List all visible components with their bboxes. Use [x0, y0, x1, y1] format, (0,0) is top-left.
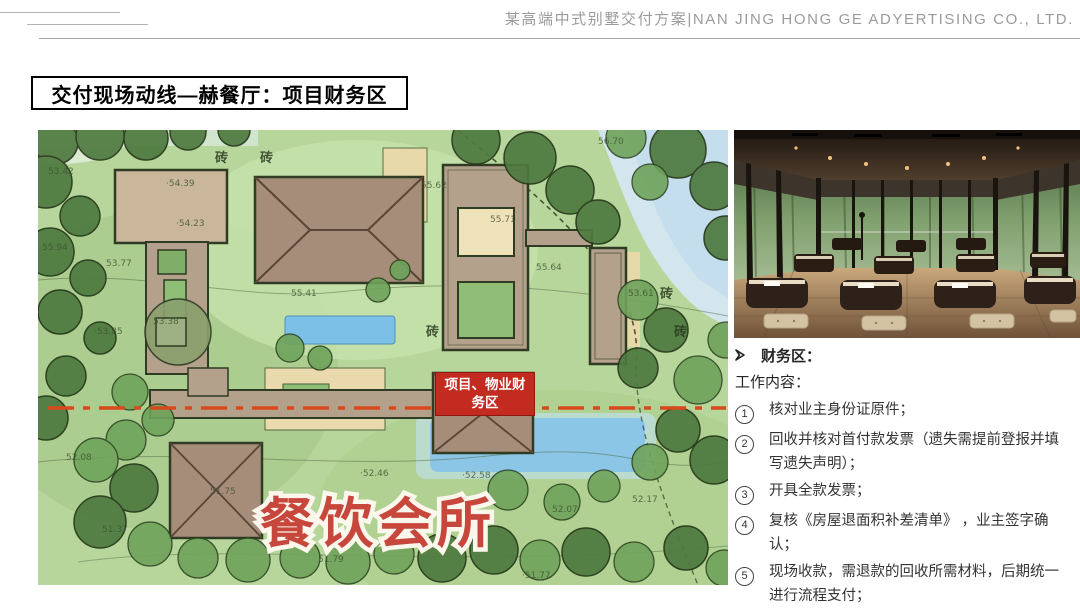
list-item: 4 复核《房屋退面积补差清单》 ，业主签字确认； [735, 509, 1069, 557]
svg-text:52.17: 52.17 [632, 495, 658, 505]
page-title: 交付现场动线—赫餐厅：项目财务区 [52, 79, 388, 108]
svg-text:53.38: 53.38 [153, 317, 179, 327]
svg-text:52.07: 52.07 [552, 505, 578, 515]
decor-line [0, 12, 120, 13]
list-item-text: 现场收款，需退款的回收所需材料，后期统一进行流程支付； [769, 560, 1069, 608]
svg-text:56.70: 56.70 [598, 137, 624, 147]
interior-photo [734, 130, 1080, 338]
svg-text:·54.23: ·54.23 [176, 219, 205, 229]
svg-text:55.62: 55.62 [421, 181, 447, 191]
arrow-right-icon [735, 349, 749, 361]
page-title-box: 交付现场动线—赫餐厅：项目财务区 [31, 76, 408, 110]
finance-area-label: 项目、物业财务区 [435, 372, 535, 416]
map-brick-label: 砖 [215, 150, 228, 165]
section-subtitle: 工作内容： [735, 371, 1069, 395]
circled-number: 3 [735, 479, 769, 506]
svg-text:·52.58: ·52.58 [462, 471, 491, 481]
svg-text:·51.77: ·51.77 [522, 571, 551, 581]
svg-text:55.71: 55.71 [490, 215, 516, 225]
svg-text:53.42: 53.42 [48, 167, 74, 177]
map-brick-label: 砖 [660, 286, 673, 301]
svg-text:53.61: 53.61 [628, 289, 654, 299]
section-title: 财务区： [761, 345, 821, 366]
svg-text:51.79: 51.79 [318, 555, 344, 565]
finance-notes-panel: 财务区： 工作内容： 1 核对业主身份证原件； 2 回收并核对首付款发票（遗失需… [735, 343, 1069, 608]
list-item: 1 核对业主身份证原件； [735, 398, 1069, 425]
svg-text:51.75: 51.75 [210, 487, 236, 497]
section-header: 财务区： [735, 343, 1069, 367]
list-item-text: 核对业主身份证原件； [769, 398, 1069, 425]
map-brick-label: 砖 [674, 324, 687, 339]
svg-text:·54.39: ·54.39 [166, 179, 195, 189]
list-item-text: 回收并核对首付款发票（遗失需提前登报并填写遗失声明）； [769, 428, 1069, 476]
interior-photo-art [734, 130, 1080, 338]
circled-number: 5 [735, 560, 769, 608]
map-brick-label: 砖 [260, 150, 273, 165]
circled-number: 2 [735, 428, 769, 476]
svg-text:55.41: 55.41 [291, 289, 317, 299]
list-item-text: 复核《房屋退面积补差清单》 ，业主签字确认； [769, 509, 1069, 557]
circled-number: 4 [735, 509, 769, 557]
list-item-text: 开具全款发票； [769, 479, 1069, 506]
decor-line [27, 24, 148, 25]
map-brick-label: 砖 [426, 324, 439, 339]
list-item: 3 开具全款发票； [735, 479, 1069, 506]
list-item: 5 现场收款，需退款的回收所需材料，后期统一进行流程支付； [735, 560, 1069, 608]
svg-text:52.08: 52.08 [66, 453, 92, 463]
venue-name-label: 餐饮会所 [260, 494, 496, 554]
list-item: 2 回收并核对首付款发票（遗失需提前登报并填写遗失声明）； [735, 428, 1069, 476]
slide-canvas: 某高端中式别墅交付方案|NAN JING HONG GE ADYERTISING… [0, 0, 1080, 608]
site-plan-map: 砖 砖 砖 砖 砖 53.42 ·54.39 ·54.23 55.94 53.7… [38, 130, 728, 585]
header-company-title: 某高端中式别墅交付方案|NAN JING HONG GE ADYERTISING… [174, 8, 1074, 29]
site-plan-drawing: 砖 砖 砖 砖 砖 53.42 ·54.39 ·54.23 55.94 53.7… [38, 130, 728, 585]
svg-text:53.77: 53.77 [106, 259, 132, 269]
svg-text:55.64: 55.64 [536, 263, 562, 273]
svg-text:55.94: 55.94 [42, 243, 68, 253]
svg-text:51.37: 51.37 [102, 525, 128, 535]
svg-text:·52.46: ·52.46 [360, 469, 389, 479]
circled-number: 1 [735, 398, 769, 425]
svg-text:·53.85: ·53.85 [94, 327, 123, 337]
decor-line [39, 38, 1080, 39]
